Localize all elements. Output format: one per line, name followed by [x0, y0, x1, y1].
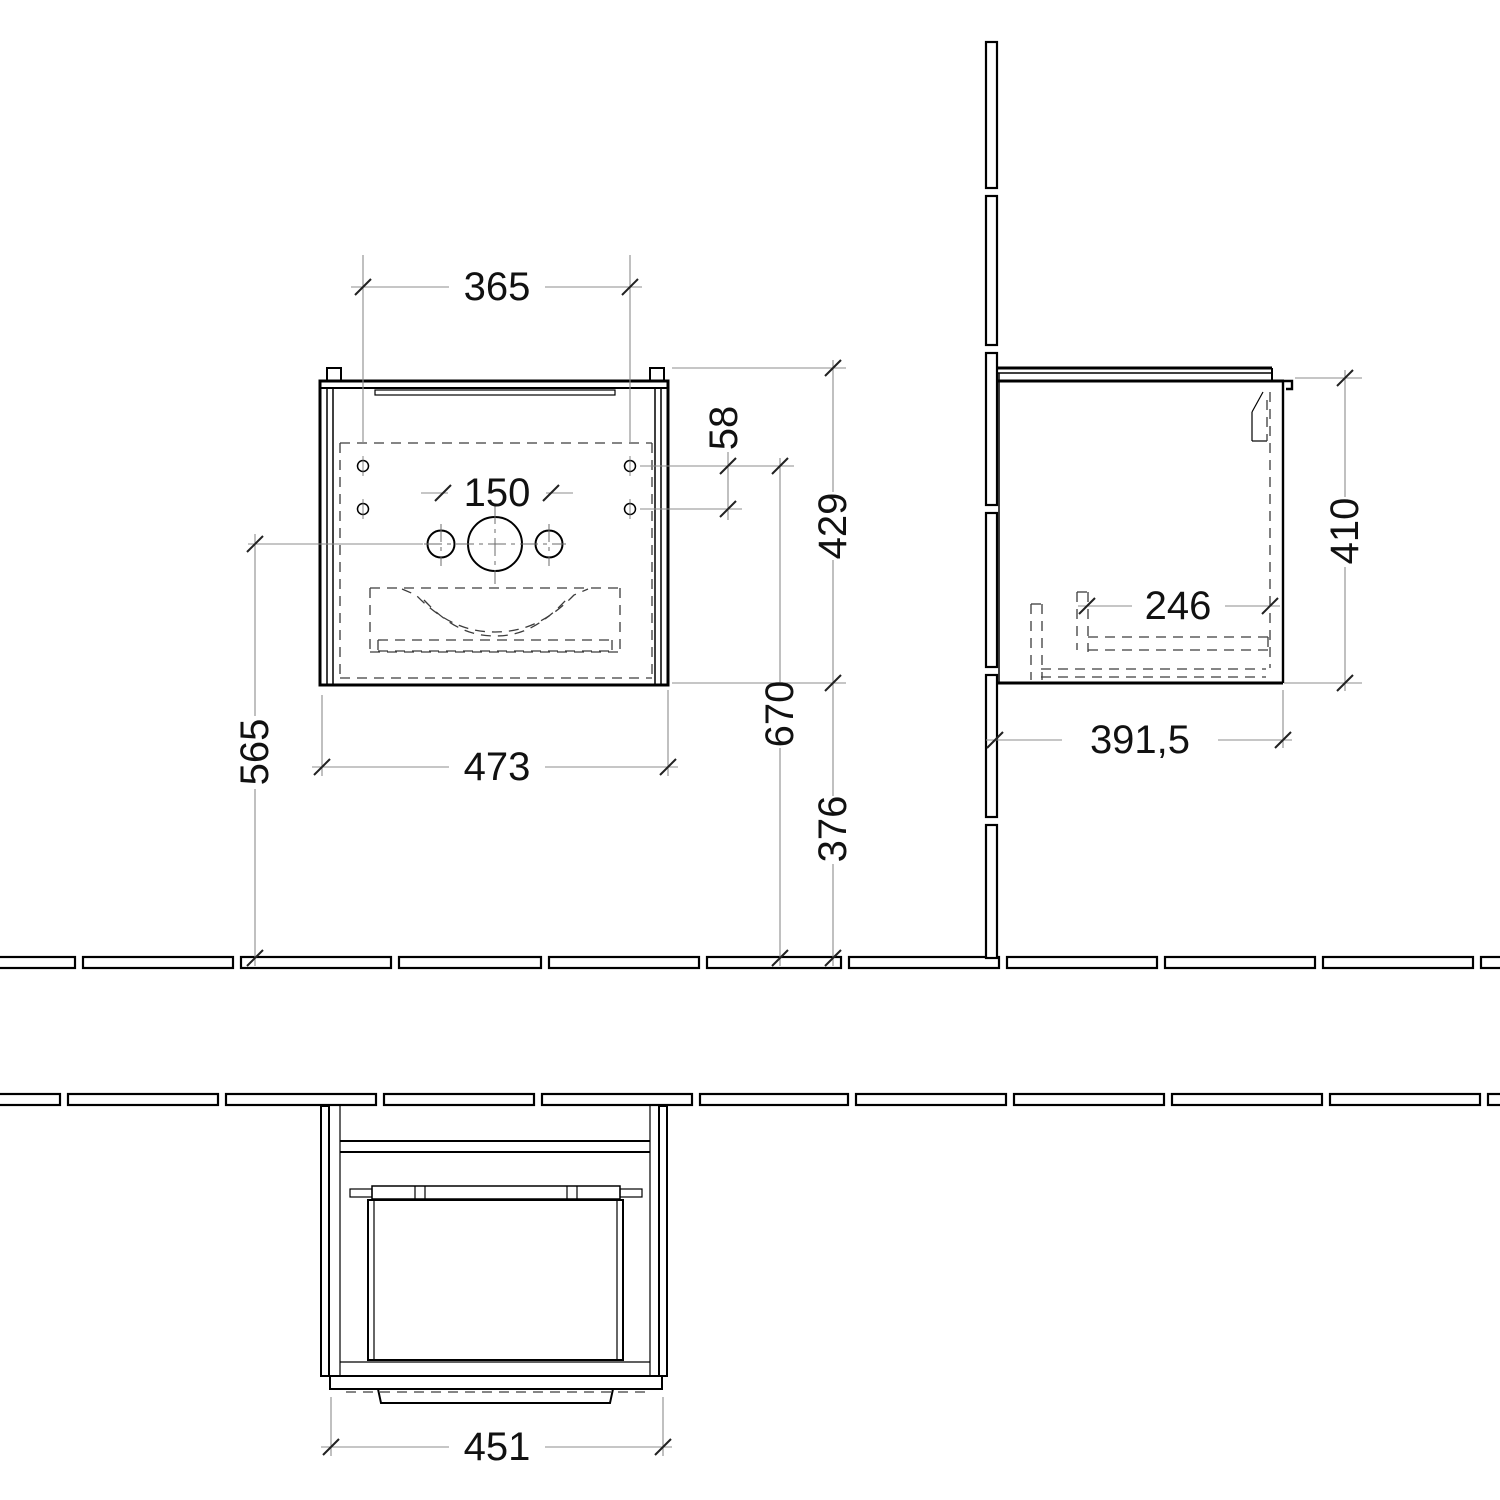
- front-hidden-drawer: [370, 588, 620, 652]
- pipe-holes: [424, 506, 566, 584]
- front-top-right-tab: [650, 368, 664, 381]
- dim-clearance-height: 376: [811, 796, 855, 863]
- dim-cabinet-height: 429: [811, 493, 855, 560]
- floor-section-line: [0, 957, 1500, 968]
- plan-right-side-panel: [659, 1106, 667, 1376]
- dim-center-height: 565: [233, 719, 277, 786]
- front-top-left-tab: [327, 368, 341, 381]
- dim-inner-depth: 246: [1145, 584, 1212, 628]
- dim-tap-hole-spacing: 150: [464, 471, 531, 515]
- side-dimension-lines: [986, 370, 1353, 748]
- side-front-lip: [1284, 381, 1292, 389]
- dim-row-spacing: 58: [702, 406, 746, 451]
- plan-view: 451: [321, 1106, 672, 1469]
- technical-drawing-page: 365 150 473 58 429 670 376 565: [0, 0, 1500, 1500]
- dim-hole-height: 670: [758, 681, 802, 748]
- dim-front-width: 451: [464, 1425, 531, 1469]
- dim-side-height: 410: [1323, 498, 1367, 565]
- plan-wall-section-line: [0, 1094, 1500, 1105]
- plan-drawer-rail: [350, 1186, 642, 1199]
- vertical-wall-section-line: [986, 42, 997, 958]
- front-top-gap-strip: [375, 390, 615, 395]
- front-extension-lines: [248, 255, 846, 776]
- dim-depth: 391,5: [1090, 718, 1190, 762]
- plan-left-side-panel: [321, 1106, 329, 1376]
- dim-mount-hole-spacing: 365: [464, 265, 531, 309]
- vanity-drawing-svg: 365 150 473 58 429 670 376 565: [0, 0, 1500, 1500]
- front-outer-box: [320, 381, 668, 685]
- side-hidden-detail: [1031, 392, 1270, 680]
- plan-front-panel: [330, 1362, 662, 1403]
- dim-cabinet-width: 473: [464, 745, 531, 789]
- side-view: 246 391,5 410: [986, 368, 1367, 762]
- front-view: 365 150 473 58 429 670 376 565: [233, 255, 855, 966]
- plan-drawer-box: [368, 1200, 623, 1360]
